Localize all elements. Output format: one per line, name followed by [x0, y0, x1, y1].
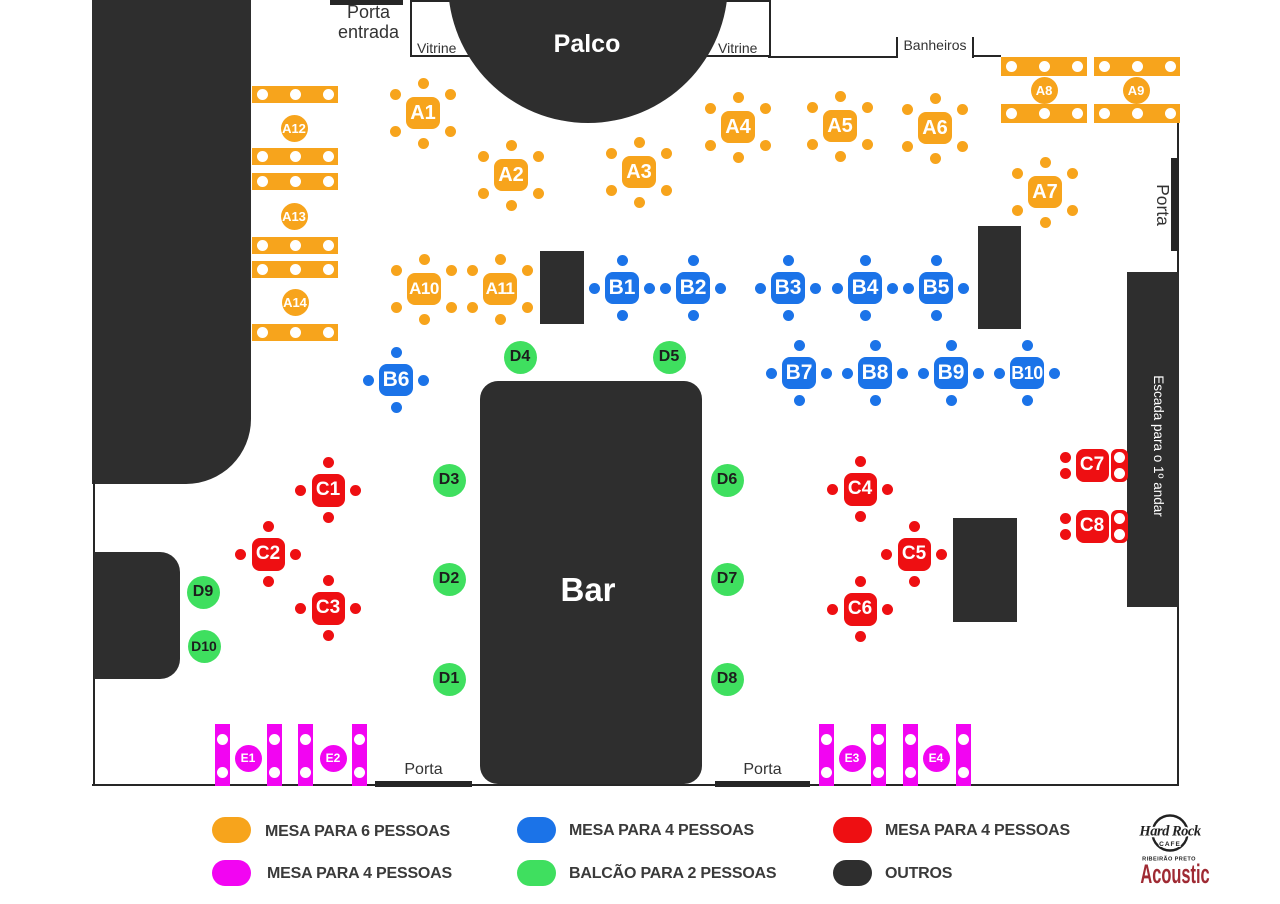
svg-text:CAFE: CAFE: [1159, 841, 1181, 848]
svg-text:Acoustic: Acoustic: [1140, 859, 1209, 889]
svg-text:Hard Rock: Hard Rock: [1138, 824, 1201, 840]
